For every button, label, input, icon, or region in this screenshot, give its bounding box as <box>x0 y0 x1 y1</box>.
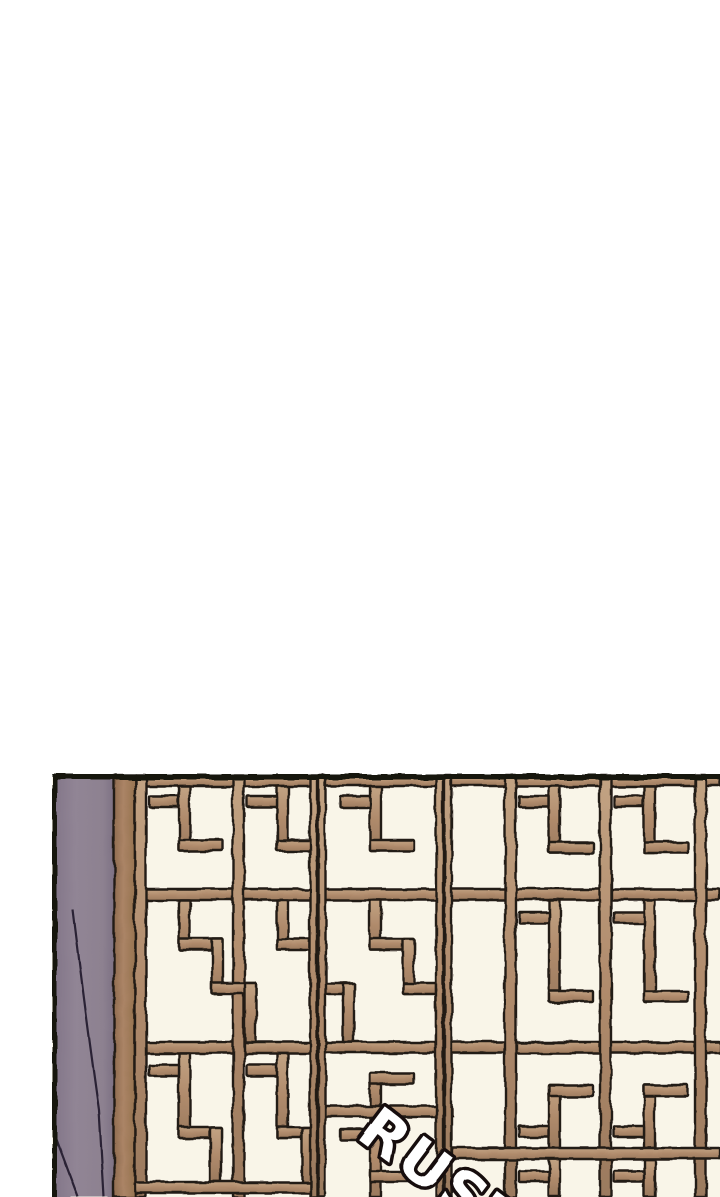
lattice-door-panel: RUSTLE <box>52 773 720 1197</box>
webtoon-page: RUSTLE <box>0 0 720 1197</box>
panel-border-left <box>52 774 57 1197</box>
curtain <box>55 777 115 1197</box>
curtain-fabric <box>55 777 115 1197</box>
panel-border-top <box>52 774 720 780</box>
door-side-frame-bar <box>114 775 135 1197</box>
